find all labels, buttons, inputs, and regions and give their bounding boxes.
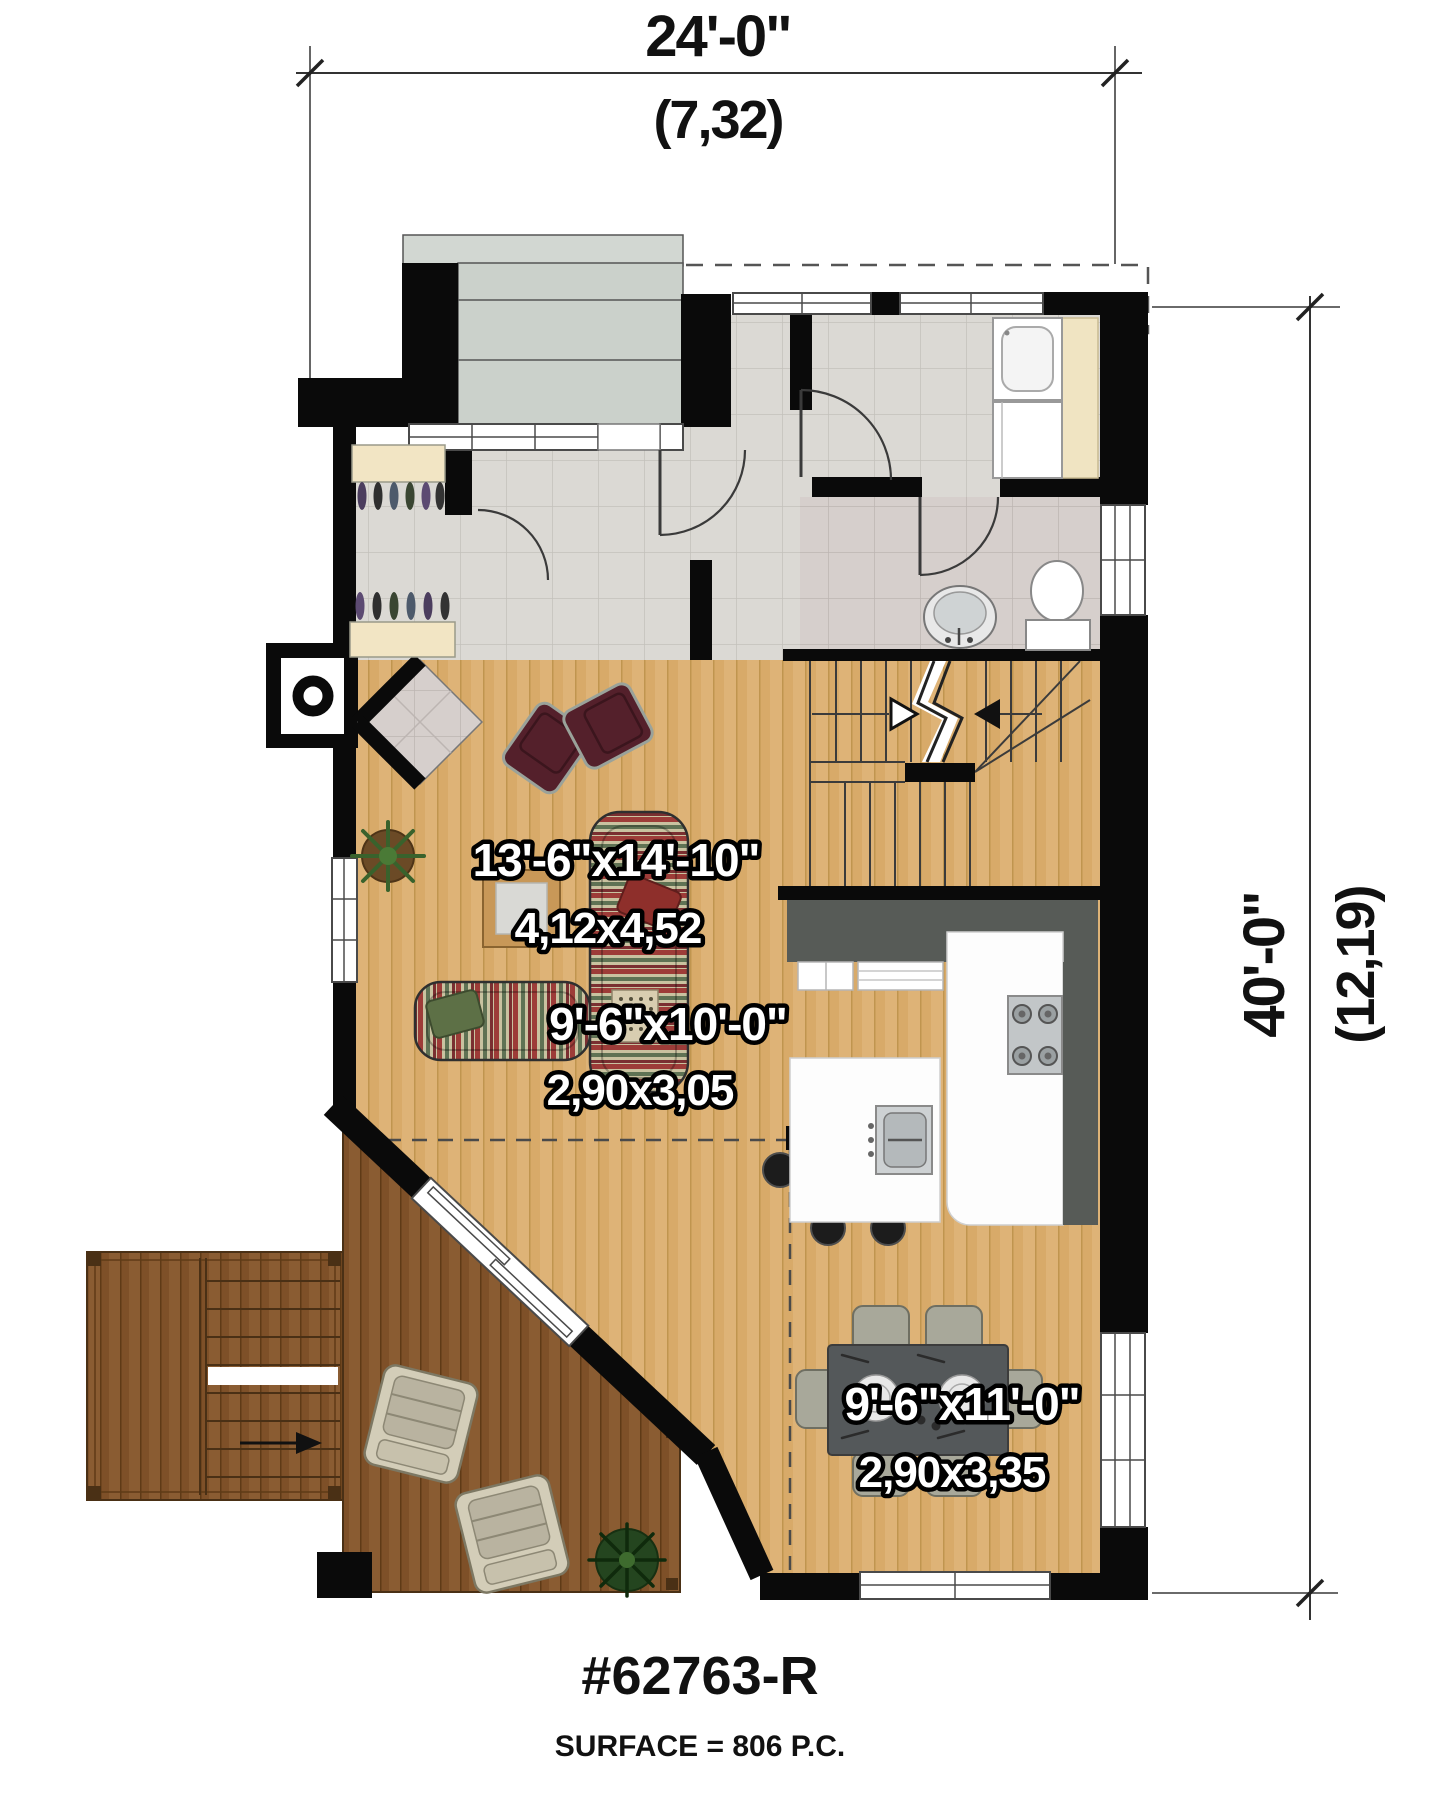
- front-door-opening: [598, 424, 660, 450]
- wall-closet-divider: [445, 445, 472, 515]
- floor-plan-drawing: 24'-0" (7,32) 40'-0" (12,19): [0, 0, 1456, 1800]
- wall-top: [871, 292, 900, 315]
- top-dim-metric: (7,32): [653, 90, 782, 150]
- dryer: [993, 402, 1062, 478]
- potted-plant: [352, 822, 424, 890]
- wall-porch-right: [681, 294, 731, 427]
- corner-plant: [589, 1524, 665, 1596]
- window-porch-side: [660, 424, 683, 450]
- wall-deck-corner-stub: [317, 1552, 372, 1598]
- dining-size-metric: 2,90x3,35: [859, 1448, 1046, 1497]
- dishwasher: [858, 962, 943, 990]
- wall-laundry-bath-right: [1000, 477, 1100, 497]
- wall-laundry-bath-left: [812, 477, 922, 497]
- dining-size-imperial: 9'-6"x11'-0": [844, 1378, 1079, 1430]
- closet-shelf-lower: [350, 622, 455, 657]
- laundry-counter: [1062, 318, 1098, 478]
- wood-stove-ring: [298, 681, 328, 711]
- title-block: #62763-R SURFACE = 806 P.C.: [555, 1646, 845, 1763]
- kitchen-counter-white: [947, 932, 1063, 1225]
- laundry: [993, 318, 1098, 478]
- wall-bottom-left: [760, 1573, 860, 1600]
- fireplace: [266, 643, 358, 748]
- wall-bottom-right: [1050, 1573, 1148, 1600]
- deck-stair-landing: [208, 1367, 338, 1385]
- wall-kitchen-top: [778, 886, 1132, 900]
- window-dining: [1101, 1333, 1145, 1527]
- stove: [1008, 996, 1062, 1074]
- right-dimension: 40'-0" (12,19): [1152, 294, 1386, 1620]
- plan-number: #62763-R: [581, 1646, 818, 1706]
- wall-right-upper: [1100, 292, 1148, 505]
- porch-steps: [403, 235, 683, 266]
- island-sink: [868, 1106, 932, 1174]
- right-dim-imperial: 40'-0": [1232, 892, 1297, 1037]
- kitchen-size-imperial: 9'-6"x10'-0": [549, 998, 787, 1050]
- bathroom-sink: [924, 586, 996, 648]
- kitchen-size-metric: 2,90x3,05: [547, 1066, 734, 1115]
- living-size-metric: 4,12x4,52: [515, 904, 702, 953]
- surface-label: SURFACE = 806 P.C.: [555, 1730, 845, 1763]
- wall-hall-stair-stub: [690, 560, 712, 660]
- top-dim-imperial: 24'-0": [645, 4, 790, 69]
- living-size-imperial: 13'-6"x14'-10": [473, 834, 760, 886]
- wall-entry-top: [298, 378, 404, 427]
- washer: [993, 318, 1062, 400]
- kitchen: [763, 900, 1098, 1245]
- kitchen-island: [763, 1058, 940, 1245]
- right-dim-metric: (12,19): [1326, 886, 1386, 1043]
- closet-shelf-upper: [352, 445, 445, 482]
- wall-left-living-lower: [333, 980, 356, 1112]
- wall-porch-left: [402, 263, 458, 427]
- floor-plan-page: 24'-0" (7,32) 40'-0" (12,19): [0, 0, 1456, 1800]
- wall-right-middle: [1100, 615, 1148, 1333]
- stair-divider-wall: [905, 763, 975, 782]
